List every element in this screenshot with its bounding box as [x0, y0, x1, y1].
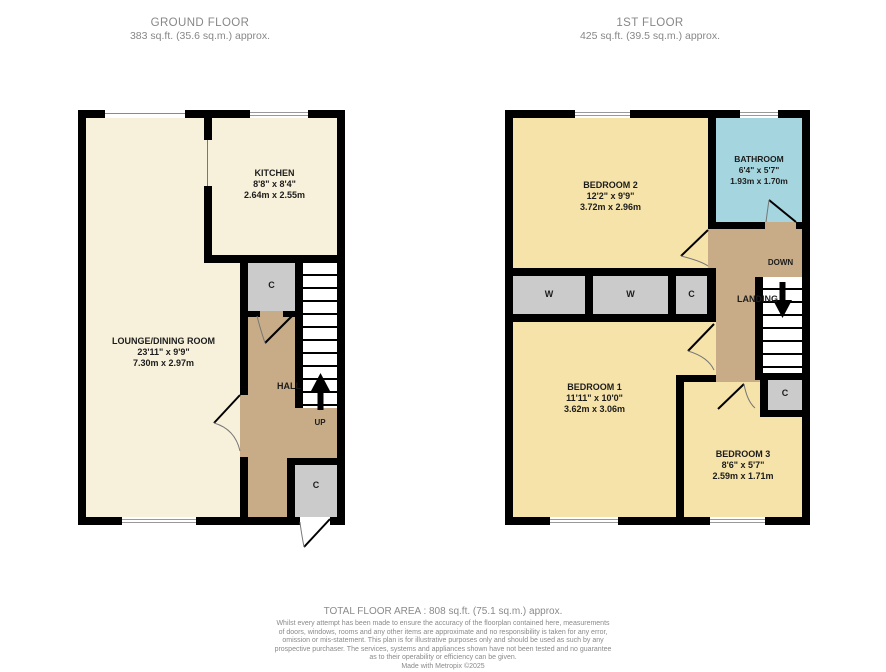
cupboard-label: C	[676, 289, 707, 300]
bathroom-label: BATHROOM 6'4" x 5'7" 1.93m x 1.70m	[716, 154, 802, 187]
up-label: UP	[300, 418, 340, 427]
ground-floor-header: GROUND FLOOR 383 sq.ft. (35.6 sq.m.) app…	[60, 17, 340, 42]
wall	[287, 458, 295, 517]
ground-floor-area: 383 sq.ft. (35.6 sq.m.) approx.	[60, 30, 340, 42]
ground-floor-plan: KITCHEN 8'8" x 8'4" 2.64m x 2.55m LOUNGE…	[78, 110, 345, 525]
bedroom-3-label: BEDROOM 3 8'6" x 5'7" 2.59m x 1.71m	[684, 449, 802, 482]
window-lounge-bottom	[122, 517, 196, 525]
bedroom-1-label: BEDROOM 1 11'11" x 10'0" 3.62m x 3.06m	[513, 382, 676, 415]
window-kitchen	[250, 110, 308, 118]
door-opening-bathroom	[765, 222, 796, 229]
first-floor-header: 1ST FLOOR 425 sq.ft. (39.5 sq.m.) approx…	[500, 17, 800, 42]
cupboard-label: C	[295, 480, 337, 491]
disclaimer-line: Whilst every attempt has been made to en…	[0, 620, 886, 629]
total-floor-area: TOTAL FLOOR AREA : 808 sq.ft. (75.1 sq.m…	[0, 606, 886, 617]
first-floor-plan: BEDROOM 2 12'2" x 9'9" 3.72m x 2.96m BAT…	[505, 110, 810, 525]
cupboard-label: C	[768, 388, 802, 399]
disclaimer-line: prospective purchaser. The services, sys…	[0, 646, 886, 655]
closet-cupboard-entrance	[295, 465, 337, 517]
room-bedroom-1	[513, 322, 676, 517]
first-floor-title: 1ST FLOOR	[500, 17, 800, 29]
wardrobe-label: W	[513, 289, 585, 300]
wardrobe-label: W	[593, 289, 668, 300]
wall	[755, 373, 802, 380]
stairs-down	[763, 277, 802, 373]
disclaimer-line: omission or mis-statement. This plan is …	[0, 637, 886, 646]
door-opening-kitchen	[204, 140, 212, 186]
window-lounge-top	[105, 110, 185, 118]
kitchen-label: KITCHEN 8'8" x 8'4" 2.64m x 2.55m	[212, 168, 337, 201]
window-bedroom-3	[710, 517, 765, 525]
first-floor-area: 425 sq.ft. (39.5 sq.m.) approx.	[500, 30, 800, 42]
door-opening-bedroom-2	[708, 229, 716, 268]
window-bedroom-1	[550, 517, 618, 525]
wall	[755, 277, 763, 373]
wall	[283, 311, 295, 317]
disclaimer-line: of doors, windows, rooms and any other i…	[0, 629, 886, 638]
metropix-credit: Made with Metropix ©2025	[0, 663, 886, 672]
door-opening-lounge-hall	[240, 395, 248, 457]
door-opening-front	[300, 517, 330, 525]
wall	[676, 375, 716, 382]
down-label: DOWN	[753, 258, 808, 267]
lounge-label: LOUNGE/DINING ROOM 23'11" x 9'9" 7.30m x…	[86, 336, 241, 369]
footer: TOTAL FLOOR AREA : 808 sq.ft. (75.1 sq.m…	[0, 606, 886, 672]
ground-floor-title: GROUND FLOOR	[60, 17, 340, 29]
wall	[676, 382, 684, 517]
disclaimer-line: as to their operability or efficiency ca…	[0, 654, 886, 663]
bedroom-2-label: BEDROOM 2 12'2" x 9'9" 3.72m x 2.96m	[513, 180, 708, 213]
room-lounge-dining	[86, 118, 204, 517]
cupboard-label: C	[248, 280, 295, 291]
landing-label: LANDING	[720, 294, 795, 305]
hall-label: HALL	[259, 381, 319, 392]
window-bathroom	[740, 110, 778, 118]
room-bedroom-1-alcove	[676, 322, 716, 375]
wall	[760, 410, 802, 417]
room-lounge-dining-extension	[204, 263, 240, 517]
wall	[248, 311, 260, 317]
window-bedroom-2	[575, 110, 630, 118]
